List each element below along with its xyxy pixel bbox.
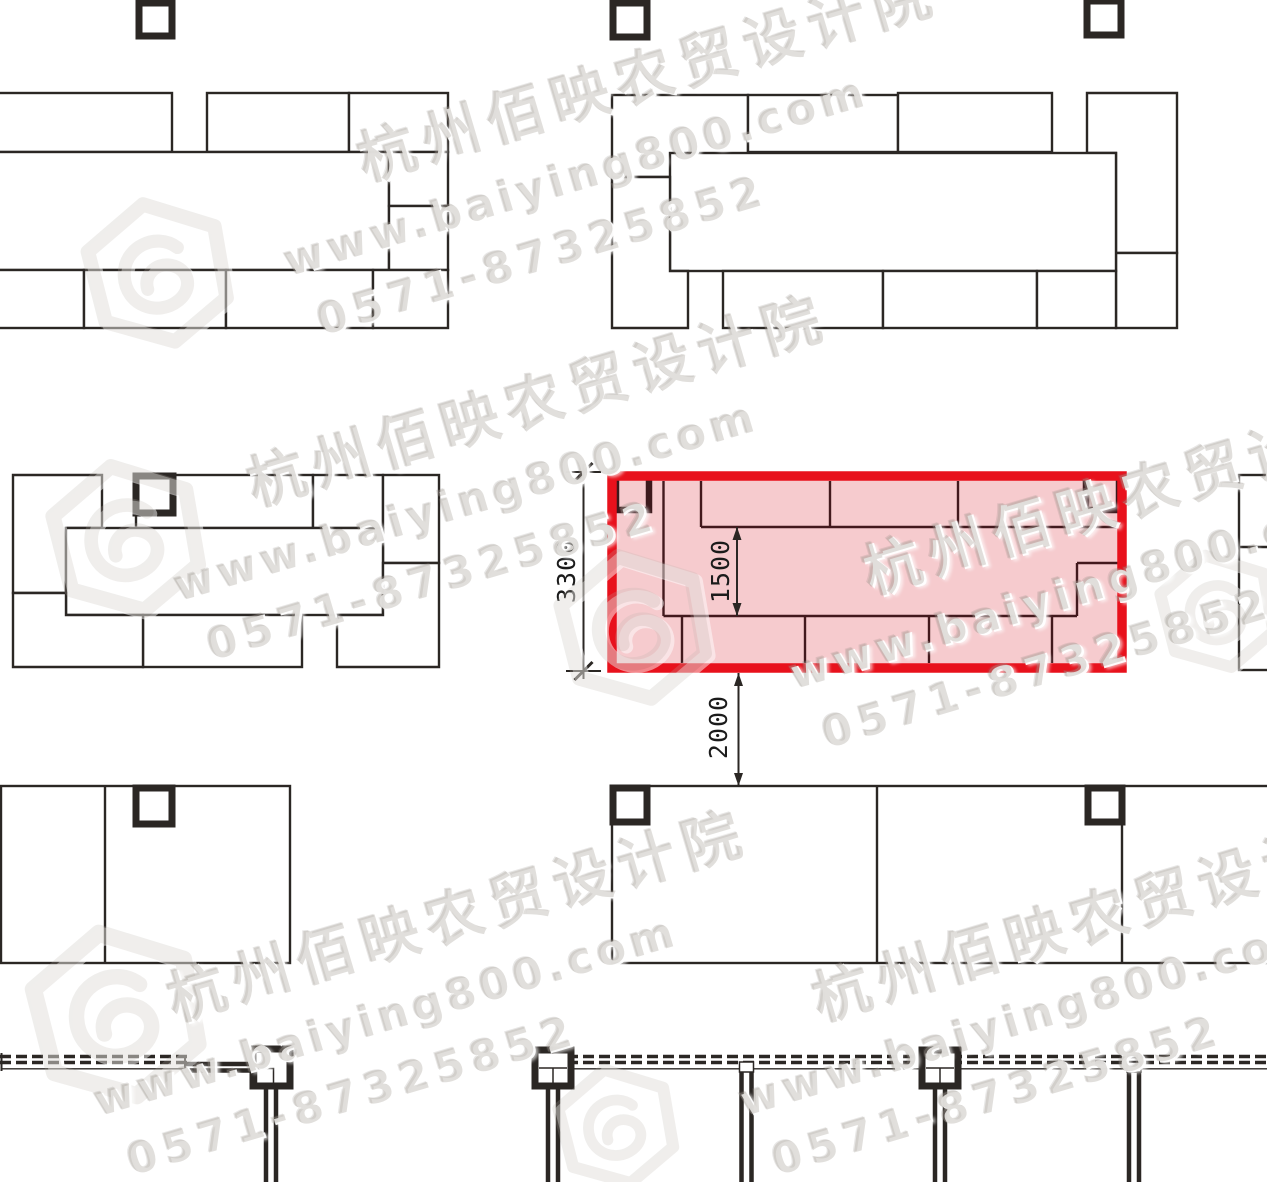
stall-cell [898,93,1052,152]
stall-cell [748,95,898,152]
column-marker [136,788,172,824]
stall-cell [723,271,883,328]
stall-cell [84,270,226,328]
column-marker [139,3,172,36]
stall-cluster-top-left [0,93,448,328]
stall-cluster-middle-left [13,475,439,667]
shopfront-wall [0,1049,1267,1182]
dimension-label-1500: 1500 [706,501,736,641]
stall-cell [1239,475,1267,670]
stall-cell [389,206,448,270]
stall-cell [66,528,383,615]
stall-cluster-right-edge [1239,475,1267,670]
highlight-fill [612,476,1122,668]
stall-cell [0,270,84,328]
column-marker [1087,1,1121,35]
column-marker [616,477,649,510]
stall-cell [143,615,302,667]
stall-cell [389,152,448,206]
stall-cell [226,270,373,328]
stall-cluster-bottom-middle [612,786,1267,963]
highlighted-stall-group[interactable] [612,476,1122,668]
mullion-bracket [1127,1062,1141,1072]
stall-cell [373,270,448,328]
floor-plan-stage: 3300 1500 2000 杭州佰映农贸设计院www.baiying800.c… [0,0,1267,1182]
stall-cell [383,475,439,563]
dimension-aisle-gap [734,673,743,786]
column-marker [1088,788,1122,822]
dimension-label-3300: 3300 [552,501,582,641]
column-marker [136,476,173,513]
column-marker [613,788,647,822]
stall-cluster-top-middle [612,93,1177,328]
mullion-bracket [740,1062,754,1072]
stall-cell [0,93,172,152]
stall-cell [1037,271,1116,328]
stall-cell [0,152,389,270]
column-marker [1086,477,1119,510]
stall-cell [207,93,349,152]
arrow-up-icon [734,673,743,686]
stall-cell [612,786,1267,963]
stall-cell [670,153,1116,271]
column-marker [613,3,647,37]
stall-cell [883,271,1037,328]
column-marker [253,1049,290,1086]
stall-cell [313,475,383,528]
arrow-down-icon [734,773,743,786]
floor-plan-drawing [0,0,1267,1182]
stall-cell [1116,253,1177,328]
stall-cell [349,93,448,152]
dimension-label-2000: 2000 [704,657,734,797]
